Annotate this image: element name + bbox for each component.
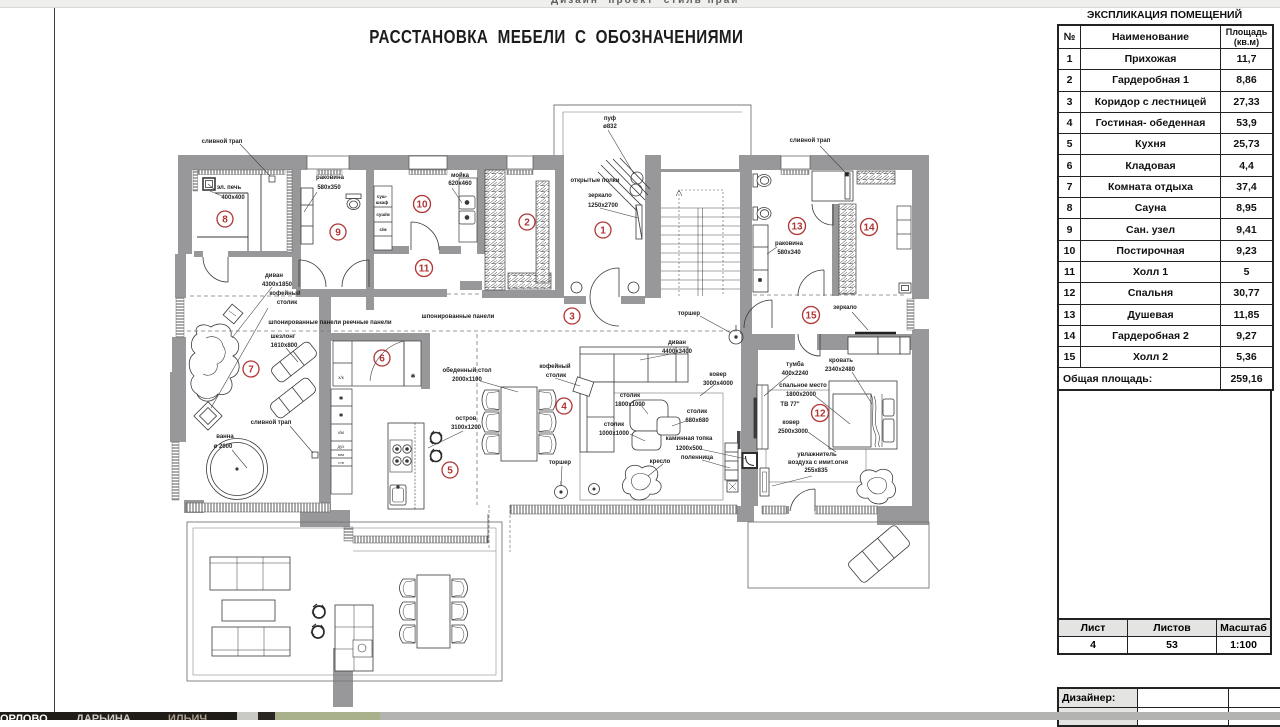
svg-text:диван: диван — [668, 340, 686, 346]
svg-text:1610х800: 1610х800 — [271, 343, 298, 349]
svg-text:мвз: мвз — [338, 453, 345, 457]
svg-text:х/к: х/к — [338, 375, 344, 380]
svg-text:шпонированные панели: шпонированные панели — [422, 314, 495, 320]
svg-text:2500х3000: 2500х3000 — [778, 429, 809, 435]
svg-text:торшер: торшер — [678, 311, 701, 317]
svg-text:столик: столик — [604, 422, 624, 428]
svg-text:11: 11 — [419, 264, 430, 275]
svg-text:✱: ✱ — [339, 395, 344, 402]
svg-text:8: 8 — [222, 215, 228, 226]
svg-text:15: 15 — [805, 311, 817, 322]
svg-text:1800х2000: 1800х2000 — [786, 392, 817, 398]
svg-text:ø832: ø832 — [603, 124, 617, 130]
svg-text:открытые полки: открытые полки — [571, 178, 620, 184]
svg-text:шкаф: шкаф — [376, 199, 389, 205]
svg-text:12: 12 — [814, 409, 826, 420]
svg-text:суш-: суш- — [377, 194, 388, 199]
svg-text:ковер: ковер — [709, 372, 727, 378]
svg-text:торшер: торшер — [549, 460, 572, 466]
svg-text:400х400: 400х400 — [221, 195, 245, 201]
svg-text:сливной трап: сливной трап — [790, 137, 831, 144]
svg-text:воздуха с имит.огня: воздуха с имит.огня — [788, 460, 848, 466]
svg-text:580х340: 580х340 — [777, 250, 801, 256]
svg-text:зеркало: зеркало — [588, 193, 612, 199]
svg-text:1250х2700: 1250х2700 — [588, 203, 619, 209]
svg-text:спальное место: спальное место — [779, 383, 827, 389]
svg-text:2340х2480: 2340х2480 — [825, 367, 856, 373]
svg-text:кофейный: кофейный — [269, 290, 301, 297]
svg-text:диван: диван — [265, 273, 283, 279]
svg-text:2: 2 — [524, 218, 530, 229]
svg-text:дух: дух — [338, 444, 346, 449]
svg-text:3: 3 — [569, 312, 575, 323]
svg-text:столик: столик — [546, 373, 566, 379]
svg-text:ø 2000: ø 2000 — [214, 444, 233, 450]
svg-text:4400х3400: 4400х3400 — [662, 349, 693, 355]
svg-text:4300х1850: 4300х1850 — [262, 282, 293, 288]
svg-text:6: 6 — [379, 354, 385, 365]
svg-text:9: 9 — [335, 228, 341, 239]
svg-text:680х680: 680х680 — [685, 418, 709, 424]
svg-text:с/м: с/м — [379, 227, 387, 232]
svg-text:ТВ 77": ТВ 77" — [780, 402, 799, 408]
svg-text:1: 1 — [600, 226, 606, 237]
svg-text:увлажнитель: увлажнитель — [797, 452, 837, 458]
svg-text:эл. печь: эл. печь — [217, 185, 242, 191]
svg-text:255х835: 255х835 — [804, 468, 828, 474]
svg-text:10: 10 — [416, 200, 428, 211]
svg-text:остров: остров — [456, 416, 477, 422]
svg-text:3100х1200: 3100х1200 — [451, 425, 482, 431]
svg-text:раковина: раковина — [316, 175, 345, 181]
svg-text:1200х500: 1200х500 — [676, 446, 703, 452]
svg-text:3000х4000: 3000х4000 — [703, 381, 734, 387]
svg-text:столик: столик — [687, 409, 707, 415]
svg-text:поленница: поленница — [681, 455, 714, 461]
svg-text:шезлонг: шезлонг — [271, 334, 296, 340]
svg-text:кресло: кресло — [650, 459, 671, 465]
svg-text:✱: ✱ — [339, 412, 344, 419]
svg-text:раковина: раковина — [775, 241, 804, 247]
svg-text:сливной трап: сливной трап — [251, 419, 292, 426]
svg-text:1000х1000: 1000х1000 — [599, 431, 630, 437]
svg-text:1800х1000: 1800х1000 — [615, 402, 646, 408]
svg-text:580х350: 580х350 — [317, 185, 341, 191]
svg-text:2000х1100: 2000х1100 — [452, 377, 482, 383]
svg-text:пуф: пуф — [604, 115, 616, 122]
svg-text:ковер: ковер — [782, 420, 800, 426]
svg-text:шпонированные панели реечные п: шпонированные панели реечные панели — [268, 320, 392, 326]
svg-text:мойка: мойка — [451, 172, 470, 179]
svg-text:кофейный: кофейный — [539, 363, 571, 370]
svg-text:столик: столик — [620, 393, 640, 399]
svg-text:тумба: тумба — [786, 361, 804, 368]
svg-text:обеденный стол: обеденный стол — [442, 367, 491, 374]
svg-text:к/м: к/м — [338, 430, 344, 435]
svg-text:сливной трап: сливной трап — [202, 138, 243, 145]
svg-text:кровать: кровать — [829, 358, 853, 364]
svg-text:каминная топка: каминная топка — [666, 436, 713, 442]
svg-text:ванна: ванна — [216, 434, 234, 440]
svg-text:зеркало: зеркало — [833, 305, 857, 311]
svg-text:13: 13 — [791, 222, 803, 233]
svg-text:400х2240: 400х2240 — [782, 371, 809, 377]
svg-text:столик: столик — [277, 300, 297, 306]
svg-text:7: 7 — [248, 365, 254, 376]
svg-text:5: 5 — [447, 466, 453, 477]
svg-text:суш/м: суш/м — [376, 212, 390, 217]
svg-text:620х460: 620х460 — [448, 181, 472, 187]
svg-text:14: 14 — [863, 223, 875, 234]
svg-text:4: 4 — [561, 402, 567, 413]
svg-text:✱: ✱ — [410, 373, 415, 380]
svg-text:ств: ств — [338, 461, 344, 465]
